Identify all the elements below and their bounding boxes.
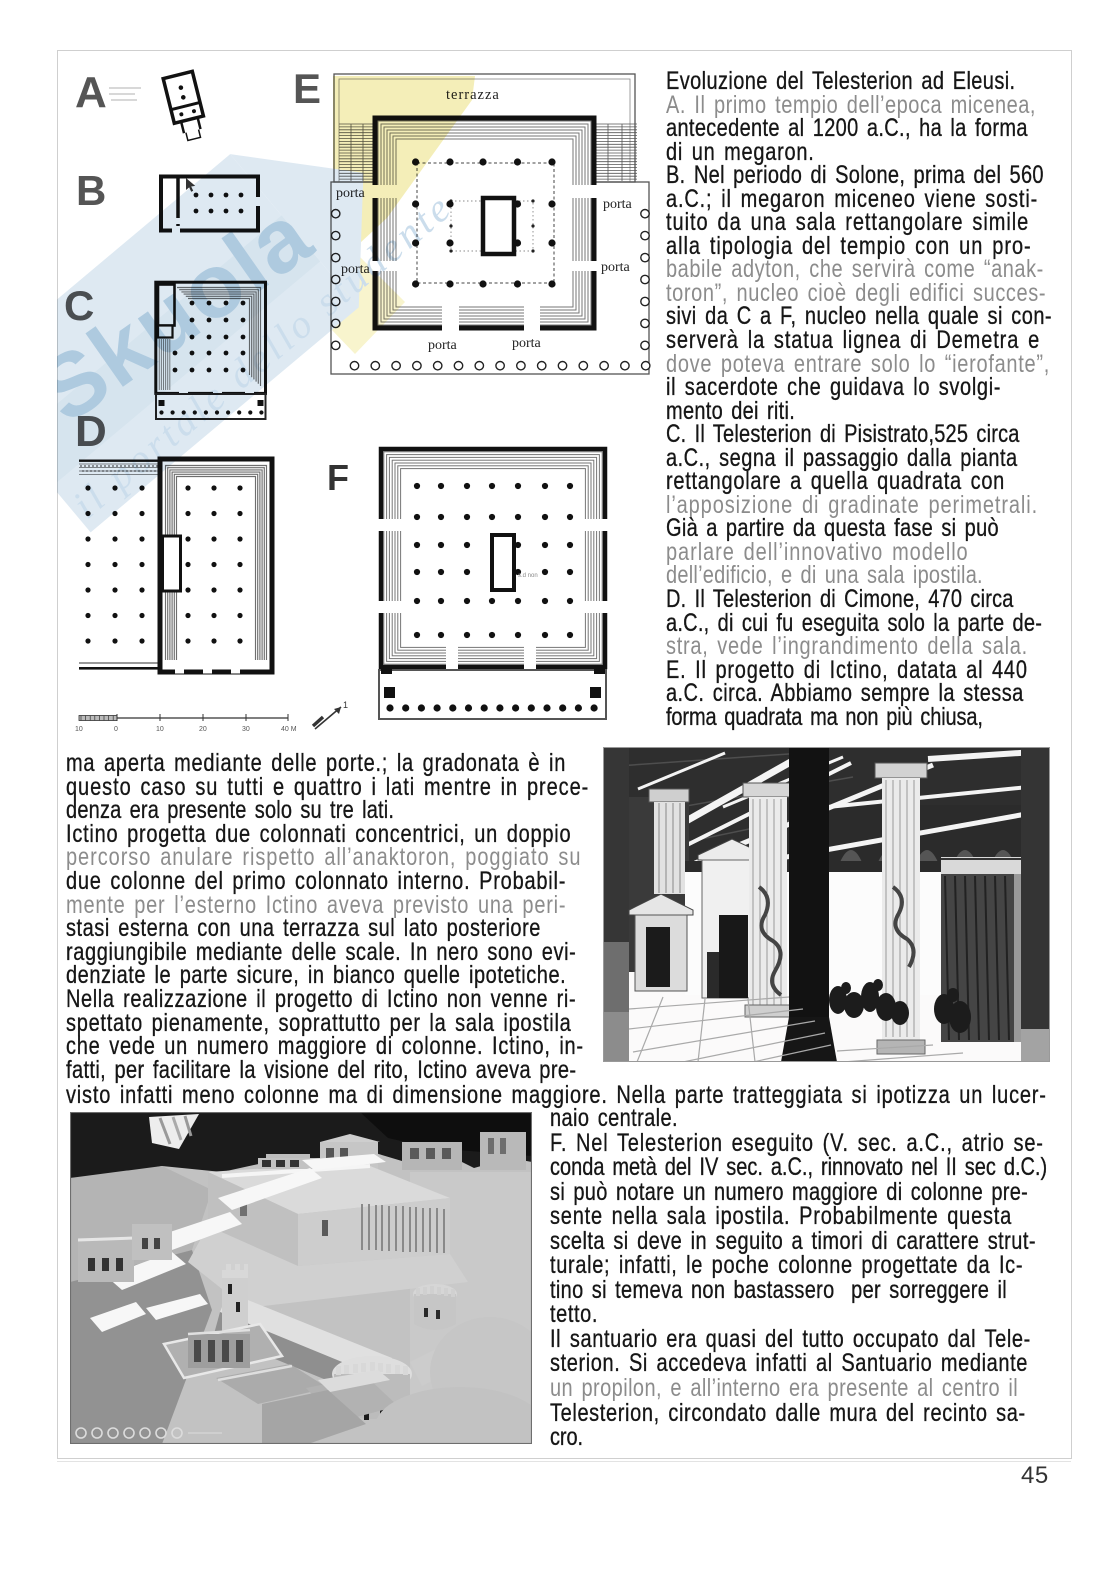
svg-text:porta: porta <box>512 336 542 351</box>
svg-text:10: 10 <box>75 726 83 733</box>
svg-text:E: E <box>293 65 321 112</box>
svg-text:0: 0 <box>114 726 118 733</box>
svg-text:F: F <box>327 457 349 498</box>
svg-text:B: B <box>76 167 106 214</box>
svg-text:A: A <box>75 68 107 117</box>
svg-text:20: 20 <box>199 726 207 733</box>
svg-text:porta: porta <box>603 197 633 212</box>
svg-text:1: 1 <box>343 700 348 710</box>
svg-text:40 M: 40 M <box>281 726 297 733</box>
svg-text:porta: porta <box>601 260 631 275</box>
svg-text:30: 30 <box>242 726 250 733</box>
svg-text:10: 10 <box>156 726 164 733</box>
svg-text:s.d non: s.d non <box>518 573 538 579</box>
svg-text:porta: porta <box>428 338 458 353</box>
